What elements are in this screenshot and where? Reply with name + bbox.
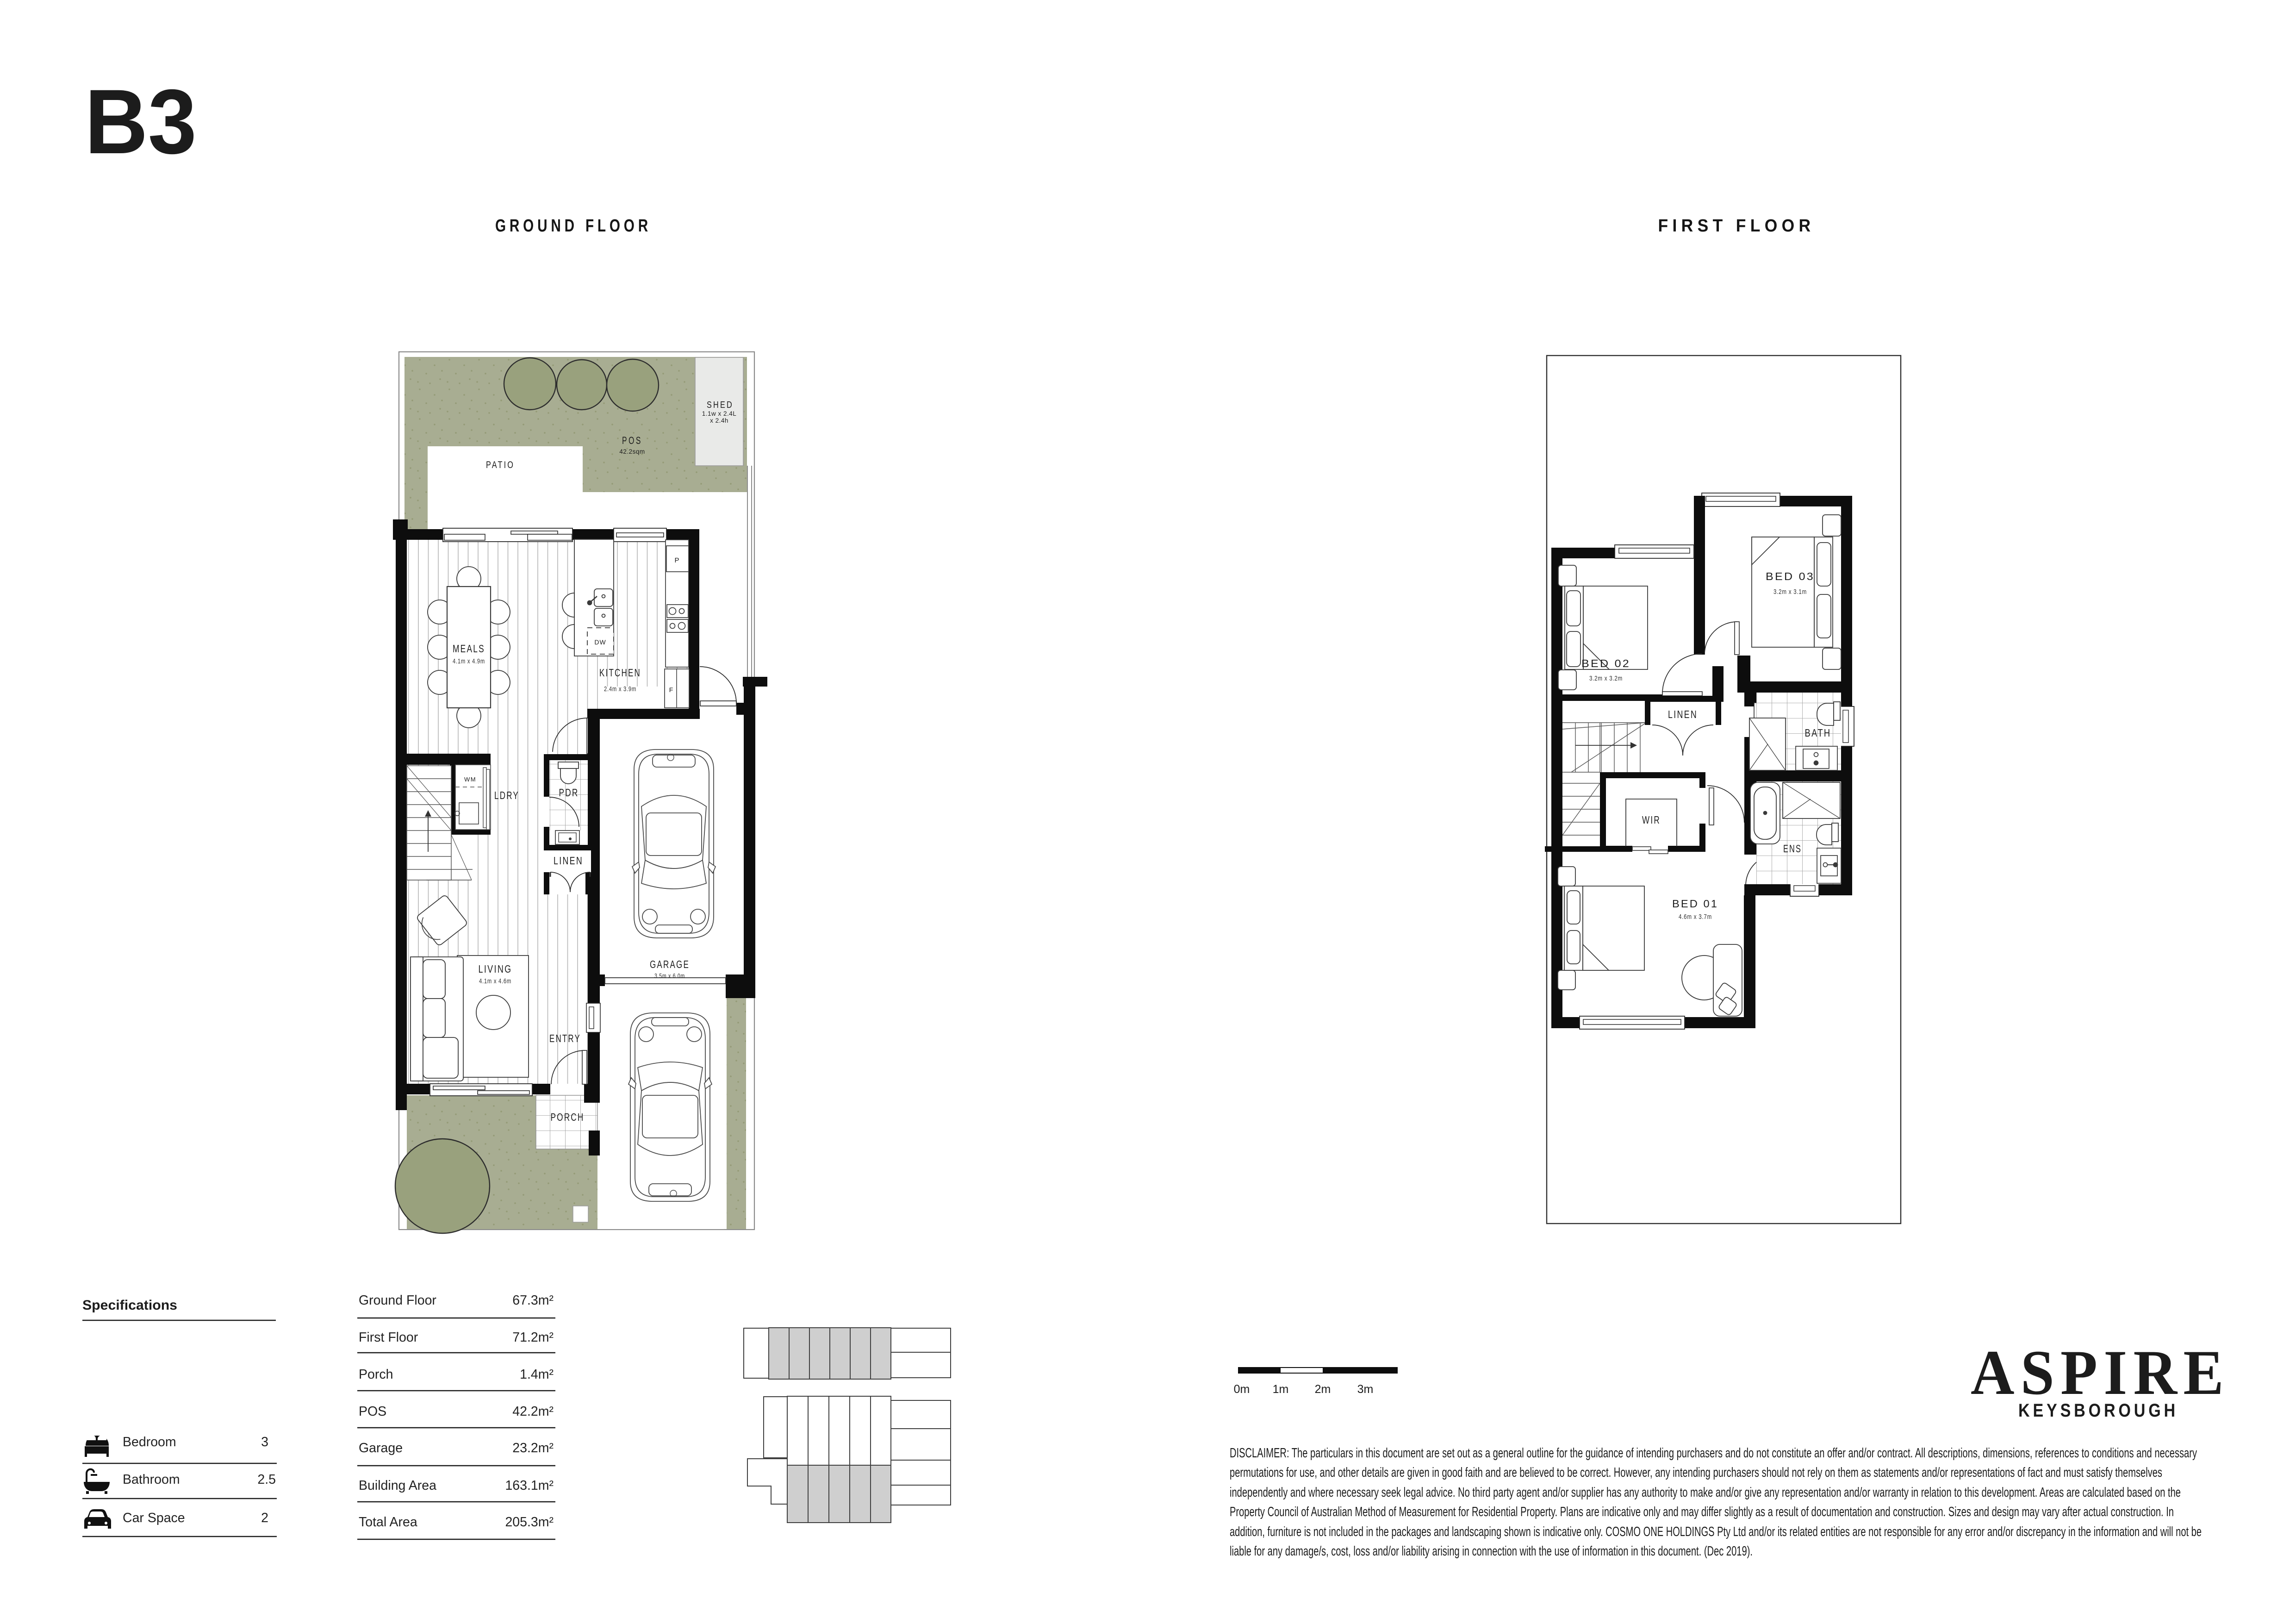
svg-text:Porch: Porch — [359, 1367, 393, 1382]
svg-text:F: F — [669, 686, 673, 693]
svg-text:GARAGE: GARAGE — [650, 958, 690, 970]
svg-text:3.2m x 3.1m: 3.2m x 3.1m — [1773, 588, 1807, 596]
svg-text:1.1w x 2.4L: 1.1w x 2.4L — [702, 410, 737, 417]
svg-text:KEYSBOROUGH: KEYSBOROUGH — [2018, 1400, 2178, 1421]
svg-text:23.2m²: 23.2m² — [512, 1441, 554, 1455]
svg-text:liable for any damage/s, cost,: liable for any damage/s, cost, loss and/… — [1230, 1544, 1753, 1559]
svg-text:PDR: PDR — [559, 787, 579, 799]
svg-text:SHED: SHED — [707, 400, 734, 410]
svg-text:2.4m x 3.9m: 2.4m x 3.9m — [604, 685, 636, 693]
svg-text:42.2m²: 42.2m² — [512, 1404, 554, 1419]
svg-text:LIVING: LIVING — [479, 963, 512, 975]
svg-text:x 2.4h: x 2.4h — [710, 417, 728, 424]
svg-text:KITCHEN: KITCHEN — [599, 667, 641, 679]
svg-text:BED 02: BED 02 — [1581, 657, 1630, 669]
svg-text:independently and where necess: independently and where necessary seek l… — [1230, 1485, 2181, 1500]
svg-text:WIR: WIR — [1642, 814, 1661, 826]
svg-text:2: 2 — [261, 1511, 268, 1525]
svg-text:DW: DW — [594, 638, 606, 646]
svg-text:MEALS: MEALS — [453, 643, 485, 655]
svg-text:1.4m²: 1.4m² — [520, 1367, 554, 1382]
svg-text:ENS: ENS — [1783, 843, 1802, 855]
svg-text:PATIO: PATIO — [486, 460, 515, 470]
svg-text:163.1m²: 163.1m² — [505, 1478, 554, 1493]
svg-text:P: P — [674, 556, 679, 564]
svg-text:BED 01: BED 01 — [1672, 898, 1718, 910]
svg-text:addition, furniture is not inc: addition, furniture is not included in t… — [1230, 1524, 2202, 1539]
svg-text:WM: WM — [464, 776, 476, 783]
svg-text:B3: B3 — [85, 70, 197, 173]
svg-text:ENTRY: ENTRY — [549, 1032, 581, 1044]
svg-text:PORCH: PORCH — [551, 1111, 585, 1123]
svg-text:POS: POS — [622, 435, 642, 446]
svg-text:POS: POS — [359, 1404, 386, 1419]
svg-text:DISCLAIMER: The particulars in: DISCLAIMER: The particulars in this docu… — [1230, 1446, 2197, 1461]
svg-text:Specifications: Specifications — [82, 1298, 177, 1313]
svg-text:Garage: Garage — [359, 1441, 403, 1455]
svg-text:0m: 0m — [1234, 1383, 1250, 1396]
svg-text:42.2sqm: 42.2sqm — [619, 448, 645, 455]
svg-text:Bedroom: Bedroom — [123, 1435, 176, 1449]
svg-text:FIRST FLOOR: FIRST FLOOR — [1658, 216, 1815, 236]
svg-text:2.5: 2.5 — [257, 1472, 276, 1487]
svg-text:3: 3 — [261, 1435, 268, 1449]
svg-text:205.3m²: 205.3m² — [505, 1515, 554, 1530]
svg-text:LINEN: LINEN — [1668, 708, 1698, 720]
svg-text:71.2m²: 71.2m² — [512, 1330, 554, 1345]
svg-text:Total Area: Total Area — [359, 1515, 417, 1530]
svg-text:67.3m²: 67.3m² — [512, 1293, 554, 1308]
svg-text:Bathroom: Bathroom — [123, 1472, 180, 1487]
svg-text:4.1m x 4.6m: 4.1m x 4.6m — [479, 977, 511, 985]
svg-text:4.1m x 4.9m: 4.1m x 4.9m — [453, 657, 485, 665]
svg-text:3.5m x 6.0m: 3.5m x 6.0m — [654, 972, 685, 980]
svg-text:permutations for use, and othe: permutations for use, and other details … — [1230, 1465, 2162, 1480]
svg-text:3m: 3m — [1357, 1383, 1374, 1396]
svg-text:3.2m x 3.2m: 3.2m x 3.2m — [1589, 675, 1623, 682]
svg-text:LINEN: LINEN — [554, 855, 583, 867]
svg-text:Building Area: Building Area — [359, 1478, 436, 1493]
svg-text:1m: 1m — [1273, 1383, 1289, 1396]
svg-text:ASPIRE: ASPIRE — [1971, 1337, 2230, 1408]
svg-text:4.6m x 3.7m: 4.6m x 3.7m — [1679, 913, 1712, 921]
svg-text:Car Space: Car Space — [123, 1511, 185, 1525]
svg-text:BATH: BATH — [1805, 727, 1831, 739]
svg-text:BED 03: BED 03 — [1766, 570, 1815, 582]
svg-text:LDRY: LDRY — [494, 789, 519, 801]
svg-text:GROUND FLOOR: GROUND FLOOR — [495, 216, 652, 236]
svg-text:Ground Floor: Ground Floor — [359, 1293, 436, 1308]
svg-text:2m: 2m — [1315, 1383, 1331, 1396]
svg-text:First Floor: First Floor — [359, 1330, 418, 1345]
svg-text:Property Council of Australian: Property Council of Australian Method of… — [1230, 1505, 2174, 1519]
